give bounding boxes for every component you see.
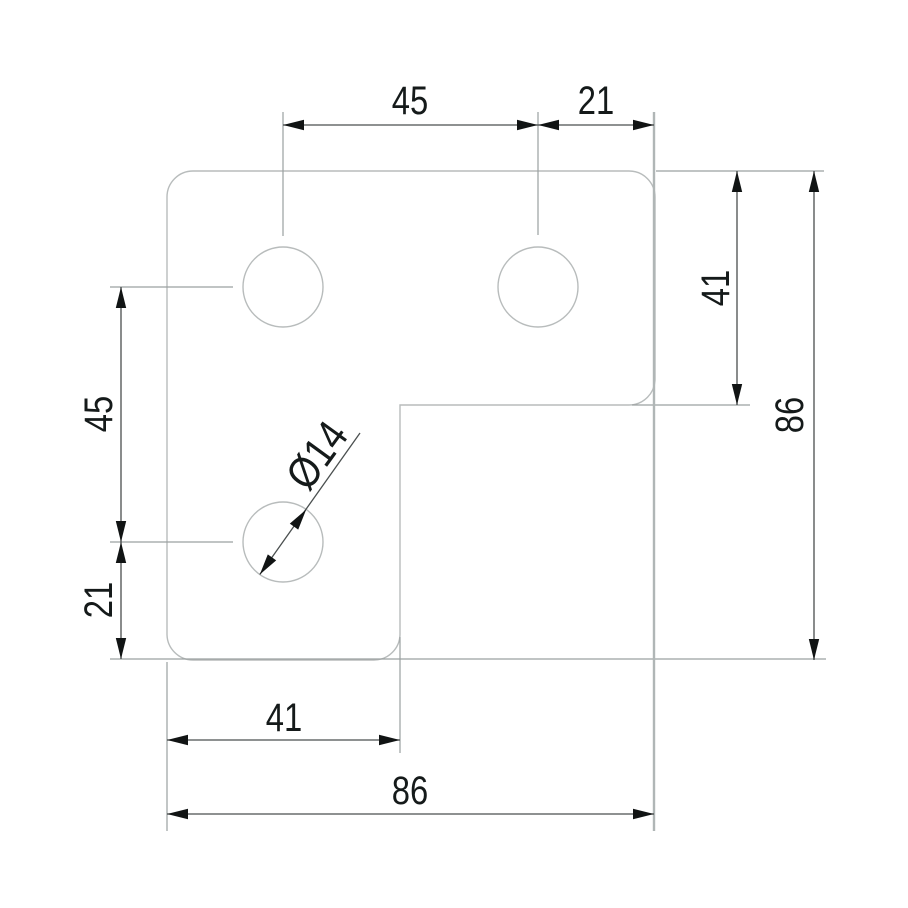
drawing-background (0, 0, 908, 908)
dim-label-top-hole-spacing: 45 (392, 78, 428, 123)
dim-label-right-overall-height: 86 (767, 397, 812, 433)
dim-label-bottom-overall-width: 86 (392, 768, 428, 813)
dim-label-bottom-arm-width: 41 (266, 695, 302, 740)
dim-label-right-arm-height: 41 (693, 270, 738, 306)
technical-drawing-canvas: 45 21 41 86 45 21 41 86 Ø14 (0, 0, 908, 908)
dim-label-top-edge-offset: 21 (578, 78, 614, 123)
dim-label-left-hole-spacing: 45 (76, 396, 121, 432)
drawing-page: 45 21 41 86 45 21 41 86 Ø14 (0, 0, 908, 908)
dim-label-left-edge-offset: 21 (76, 582, 121, 618)
